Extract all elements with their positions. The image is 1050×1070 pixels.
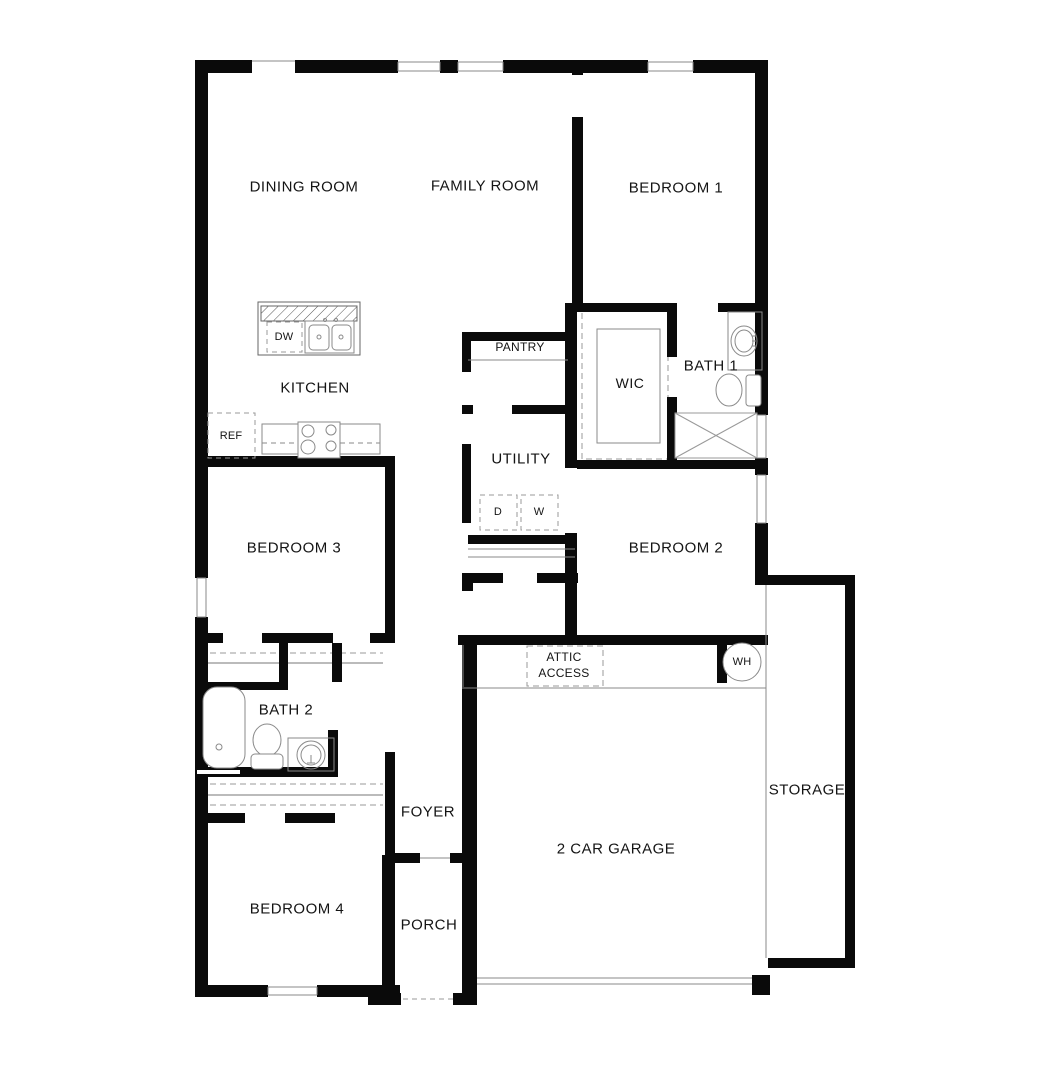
room-label-porch: PORCH bbox=[401, 917, 458, 934]
window-left-bedroom3 bbox=[195, 578, 208, 617]
fixture-label-ref: REF bbox=[220, 430, 243, 442]
room-label-wic: WIC bbox=[616, 375, 645, 391]
label-attic-access-line1: ATTIC bbox=[546, 650, 581, 664]
bath2-toilet bbox=[251, 724, 283, 769]
window-top-family-2 bbox=[458, 60, 503, 73]
label-attic-access-line2: ACCESS bbox=[538, 666, 589, 680]
walls bbox=[195, 60, 855, 1005]
room-label-foyer: FOYER bbox=[401, 804, 455, 821]
window-bottom-bedroom4 bbox=[268, 985, 317, 997]
room-label-bedroom-1: BEDROOM 1 bbox=[629, 180, 724, 197]
window-top-family-1 bbox=[398, 60, 440, 73]
room-label-bedroom-4: BEDROOM 4 bbox=[250, 901, 345, 918]
room-label-family-room: FAMILY ROOM bbox=[431, 178, 539, 195]
fixture-label-wh: WH bbox=[733, 656, 752, 668]
room-label-bath-1: BATH 1 bbox=[684, 358, 738, 375]
range-stove bbox=[262, 422, 380, 458]
bath1-shower bbox=[675, 413, 757, 458]
room-label-garage: 2 CAR GARAGE bbox=[557, 841, 676, 858]
windows bbox=[195, 60, 768, 1005]
window-right-bedroom2 bbox=[755, 475, 768, 523]
room-label-bedroom-2: BEDROOM 2 bbox=[629, 540, 724, 557]
room-label-utility: UTILITY bbox=[491, 451, 550, 468]
room-label-dining-room: DINING ROOM bbox=[250, 179, 359, 196]
fixture-label-dryer: D bbox=[494, 506, 502, 518]
floor-plan-drawing bbox=[0, 0, 1050, 1070]
bath2-tub bbox=[203, 687, 245, 768]
floor-plan: DINING ROOM FAMILY ROOM BEDROOM 1 KITCHE… bbox=[0, 0, 1050, 1070]
room-label-kitchen: KITCHEN bbox=[280, 380, 349, 397]
window-top-bedroom1 bbox=[648, 60, 693, 73]
window-top-dining bbox=[252, 60, 295, 73]
room-label-pantry: PANTRY bbox=[495, 340, 544, 354]
room-label-storage: STORAGE bbox=[769, 782, 846, 799]
fixture-label-washer: W bbox=[534, 506, 545, 518]
bath2-vanity bbox=[288, 738, 334, 771]
fixture-label-dw: DW bbox=[275, 331, 294, 343]
bath2-door-threshold bbox=[197, 770, 240, 774]
room-label-bath-2: BATH 2 bbox=[259, 702, 313, 719]
room-label-bedroom-3: BEDROOM 3 bbox=[247, 540, 342, 557]
porch-entry-opening bbox=[401, 993, 453, 1005]
bath1-toilet bbox=[716, 374, 761, 406]
